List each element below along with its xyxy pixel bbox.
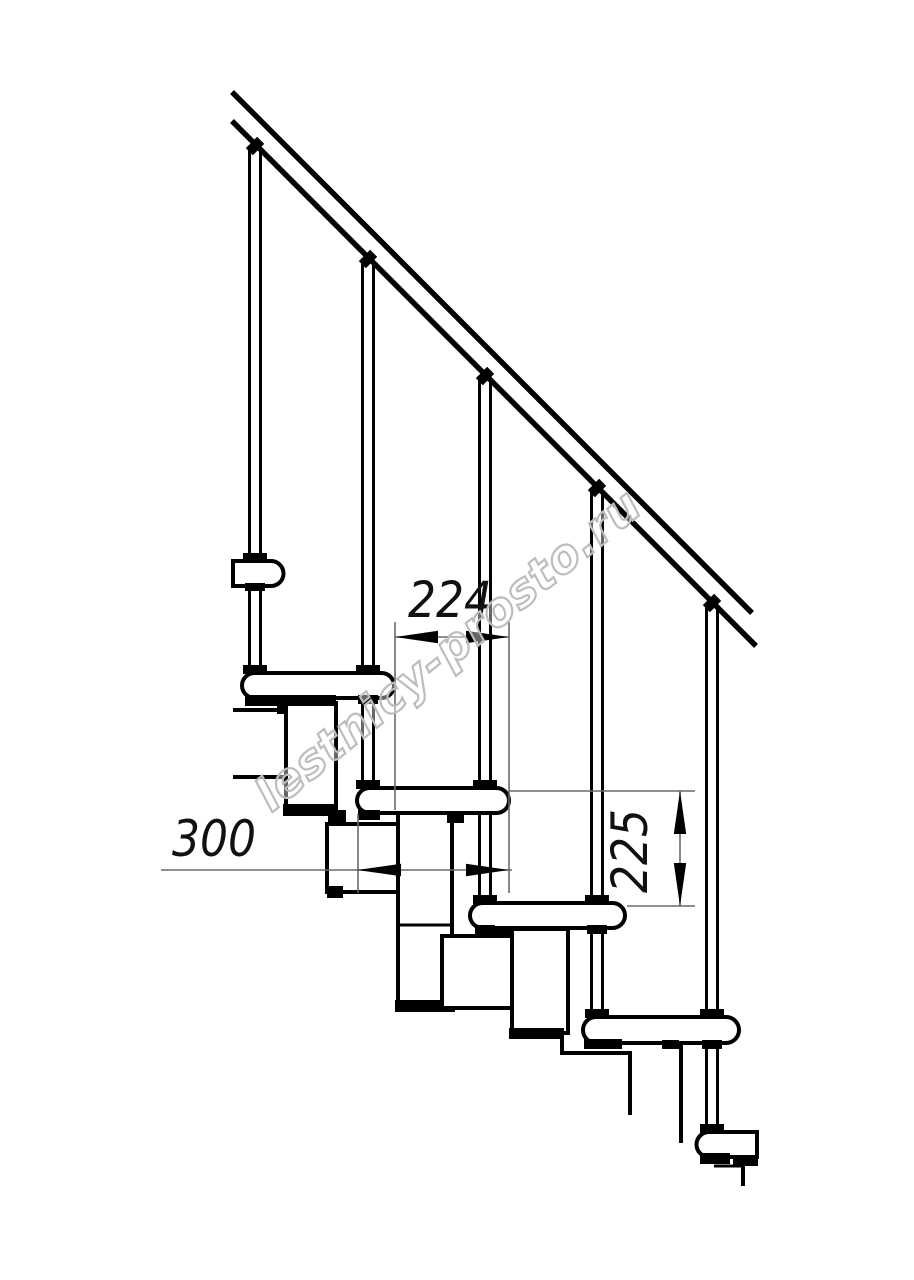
handrail-bottom-edge bbox=[232, 121, 756, 646]
module-step-down bbox=[562, 1039, 630, 1115]
dim-label-tread-depth: 300 bbox=[172, 810, 256, 868]
tread-2 bbox=[357, 788, 509, 813]
baluster-1 bbox=[246, 137, 264, 673]
treads bbox=[233, 561, 757, 1157]
technical-drawing-page: 224 300 225 lestnicy-prosto.ru bbox=[0, 0, 914, 1280]
arrowhead-up-icon bbox=[674, 791, 686, 834]
tread-3 bbox=[470, 903, 625, 928]
handrail bbox=[232, 92, 756, 646]
baluster-5 bbox=[703, 594, 721, 1132]
arrowhead-right-icon bbox=[466, 864, 509, 876]
module-box-1 bbox=[327, 824, 402, 892]
module-box-2 bbox=[442, 936, 518, 1008]
dim-label-riser-height: 225 bbox=[601, 809, 659, 893]
arrowhead-down-icon bbox=[674, 863, 686, 906]
staircase-drawing: 224 300 225 lestnicy-prosto.ru bbox=[0, 0, 914, 1280]
tread-0 bbox=[233, 561, 284, 586]
module-tube-3 bbox=[512, 929, 568, 1033]
